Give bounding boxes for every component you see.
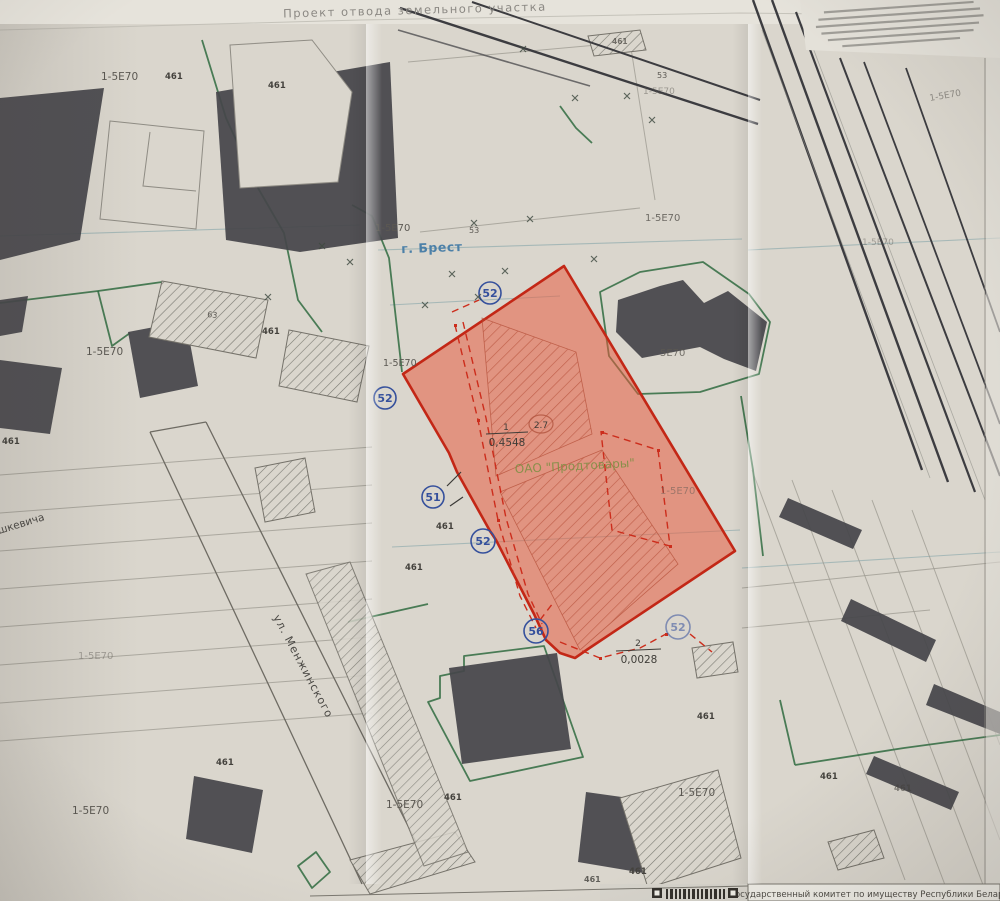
photo-lighting xyxy=(0,0,1000,901)
scanned-map-photo: 1 0,4548 2.7 2 0,0028 г. Брест ОАО "Прод… xyxy=(0,0,1000,901)
cadastral-map-svg: 1 0,4548 2.7 2 0,0028 г. Брест ОАО "Прод… xyxy=(0,0,1000,901)
